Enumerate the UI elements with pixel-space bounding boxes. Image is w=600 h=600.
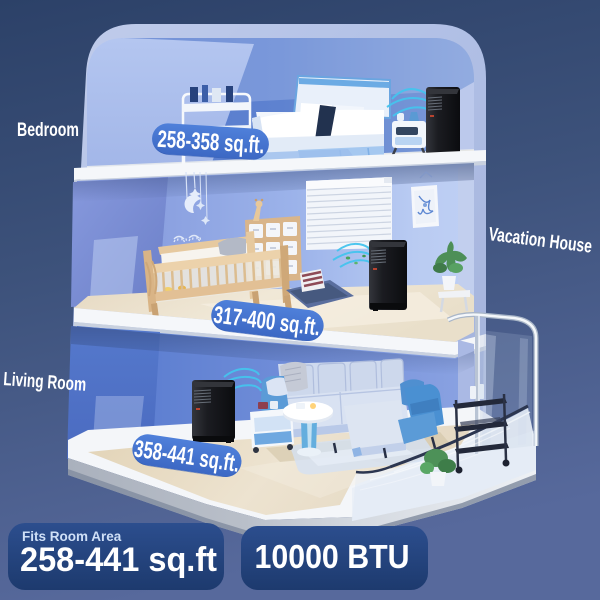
svg-text:10000 BTU: 10000 BTU xyxy=(255,538,410,575)
svg-text:Bedroom: Bedroom xyxy=(17,120,79,141)
svg-text:258-441 sq.ft: 258-441 sq.ft xyxy=(20,541,217,579)
